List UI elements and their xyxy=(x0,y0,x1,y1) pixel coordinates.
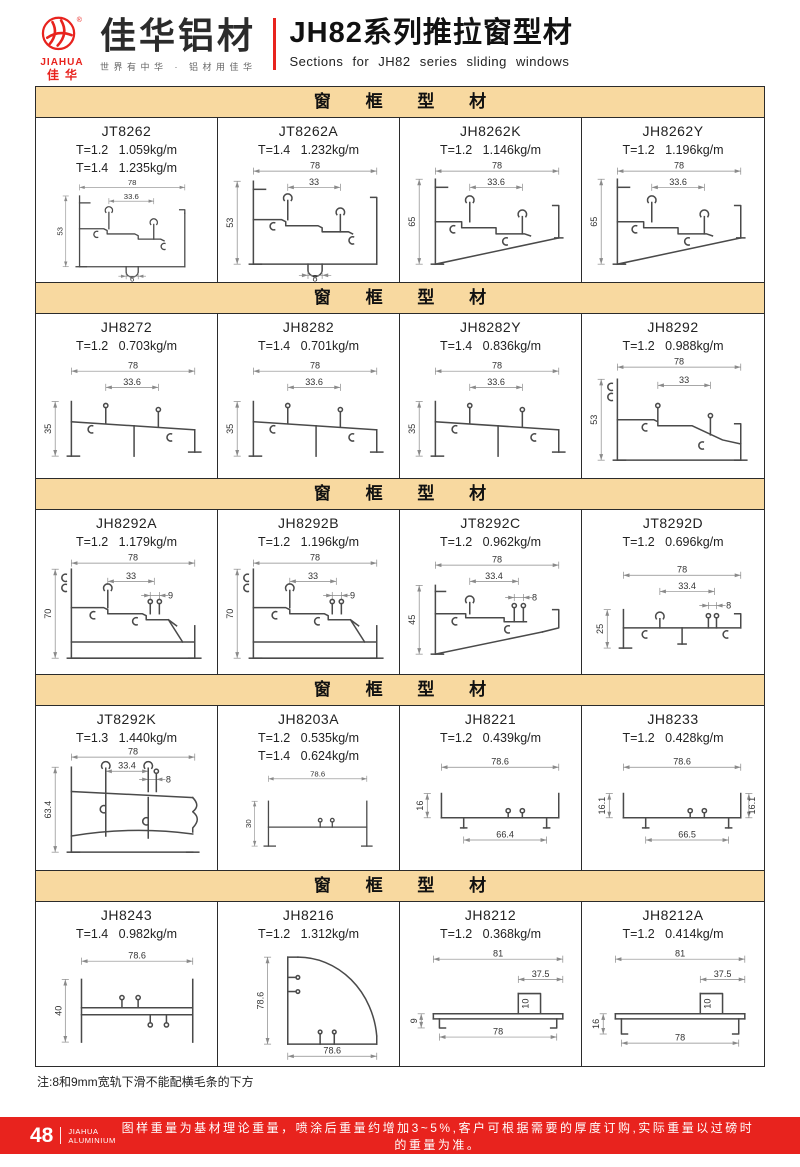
dim-label: 45 xyxy=(407,614,417,624)
dim-label: 35 xyxy=(43,423,53,433)
profile-drawing: 7833.4863.4 xyxy=(36,747,217,870)
profile-code: JT8292K xyxy=(97,711,157,729)
page-title: JH82系列推拉窗型材 xyxy=(290,16,573,51)
page-header: ® JIAHUA 佳华 佳华铝材 世界有中华 · 铝材用佳华 JH82系列推拉窗… xyxy=(0,0,800,84)
profile-drawing-svg: 7833.635 xyxy=(39,355,215,478)
footer-divider xyxy=(60,1127,61,1144)
dim-label: 81 xyxy=(675,948,685,958)
profile-specs: T=1.2 1.179kg/m xyxy=(76,533,177,551)
profile-drawing-svg: 78.61666.4 xyxy=(403,747,579,870)
catalog-section-4: 窗 框 型 材 JT8292K T=1.3 1.440kg/m 7833.486… xyxy=(36,674,764,870)
profile-spec: T=1.2 0.439kg/m xyxy=(440,729,541,747)
dim-label: 25 xyxy=(595,623,605,633)
dim-label: 16 xyxy=(591,1018,601,1028)
profile-cell-JH8262K: JH8262K T=1.2 1.146kg/m 7833.665 xyxy=(400,118,582,282)
dim-label: 66.4 xyxy=(496,829,514,839)
catalog-section-3: 窗 框 型 材 JH8292A T=1.2 1.179kg/m 7833970 … xyxy=(36,478,764,674)
dim-label: 9 xyxy=(167,590,172,600)
footer-bar: 48 JIAHUA ALUMINIUM 图样重量为基材理论重量，喷涂后重量约增加… xyxy=(0,1117,800,1154)
dim-label: 33.6 xyxy=(305,376,323,386)
profile-drawing-svg: 8137.5101678 xyxy=(585,943,761,1066)
catalog-section-1: 窗 框 型 材 JT8262 T=1.2 1.059kg/mT=1.4 1.23… xyxy=(36,87,764,282)
dim-label: 10 xyxy=(520,998,530,1008)
section-title: 窗 框 型 材 xyxy=(36,870,764,902)
profile-spec: T=1.2 1.179kg/m xyxy=(76,533,177,551)
profile-spec: T=1.2 1.312kg/m xyxy=(258,925,359,943)
profile-drawing: 78.61666.4 xyxy=(400,747,581,870)
profile-specs: T=1.2 0.439kg/m xyxy=(440,729,541,747)
dim-label: 33 xyxy=(125,570,135,580)
profile-code: JH8292 xyxy=(647,319,698,337)
dim-label: 16.1 xyxy=(597,796,607,814)
profile-spec: T=1.4 0.701kg/m xyxy=(258,337,359,355)
dim-label: 78.6 xyxy=(255,991,265,1009)
profile-cell-JH8203A: JH8203A T=1.2 0.535kg/mT=1.4 0.624kg/m 7… xyxy=(218,706,400,870)
brand-name-cn: 佳华 xyxy=(41,68,83,84)
profile-specs: T=1.2 0.988kg/m xyxy=(622,337,723,355)
dim-label: 78 xyxy=(492,554,502,564)
profile-drawing-svg: 7833970 xyxy=(39,551,215,674)
profile-spec: T=1.2 0.988kg/m xyxy=(622,337,723,355)
dim-label: 66.5 xyxy=(678,829,696,839)
profile-cell-JH8212A: JH8212A T=1.2 0.414kg/m 8137.5101678 xyxy=(582,902,764,1066)
dim-label: 53 xyxy=(55,227,64,236)
profile-cell-JH8292: JH8292 T=1.2 0.988kg/m 783353 xyxy=(582,314,764,478)
profile-spec: T=1.2 0.428kg/m xyxy=(622,729,723,747)
profile-spec: T=1.2 0.962kg/m xyxy=(440,533,541,551)
dim-label: 78 xyxy=(674,160,684,170)
dim-label: 78 xyxy=(492,360,502,370)
dim-label: 8 xyxy=(165,774,170,784)
profile-code: JT8262 xyxy=(102,123,152,141)
title-block: JH82系列推拉窗型材 Sections for JH82 series sli… xyxy=(290,16,573,69)
dim-label: 78.6 xyxy=(323,1045,341,1055)
section-grid: JT8292K T=1.3 1.440kg/m 7833.4863.4 JH82… xyxy=(36,706,764,870)
profile-code: JH8272 xyxy=(101,319,152,337)
section-grid: JH8292A T=1.2 1.179kg/m 7833970 JH8292B … xyxy=(36,510,764,674)
profile-drawing: 7833.6536 xyxy=(36,177,217,282)
dim-label: 78 xyxy=(127,178,136,187)
profile-cell-JT8292C: JT8292C T=1.2 0.962kg/m 7833.4845 xyxy=(400,510,582,674)
dim-label: 8 xyxy=(531,592,536,602)
footer-brand: JIAHUA ALUMINIUM xyxy=(68,1127,116,1145)
profile-drawing-svg: 78.640 xyxy=(39,943,215,1066)
dim-label: 33.6 xyxy=(123,192,138,201)
dim-label: 9 xyxy=(349,590,354,600)
profile-drawing: 7833.4845 xyxy=(400,551,581,674)
dim-label: 78 xyxy=(677,564,687,574)
dim-label: 53 xyxy=(225,217,235,227)
profile-cell-JH8292B: JH8292B T=1.2 1.196kg/m 7833970 xyxy=(218,510,400,674)
dim-label: 16 xyxy=(415,800,425,810)
section-grid: JT8262 T=1.2 1.059kg/mT=1.4 1.235kg/m 78… xyxy=(36,118,764,282)
profile-drawing-svg: 7833970 xyxy=(221,551,397,674)
profile-cell-JH8282Y: JH8282Y T=1.4 0.836kg/m 7833.635 xyxy=(400,314,582,478)
profile-code: JH8282Y xyxy=(460,319,521,337)
dim-label: 33 xyxy=(308,176,318,186)
profile-code: JH8262Y xyxy=(642,123,703,141)
dim-label: 65 xyxy=(589,216,599,226)
profile-spec: T=1.4 1.232kg/m xyxy=(258,141,359,159)
section-title: 窗 框 型 材 xyxy=(36,674,764,706)
profile-cell-JT8292K: JT8292K T=1.3 1.440kg/m 7833.4863.4 xyxy=(36,706,218,870)
jiahua-logo-icon: ® xyxy=(36,14,88,58)
dim-label: 70 xyxy=(225,608,235,618)
profile-code: JH8212 xyxy=(465,907,516,925)
profile-cell-JH8212: JH8212 T=1.2 0.368kg/m 8137.510978 xyxy=(400,902,582,1066)
profile-drawing: 7833.665 xyxy=(400,159,581,282)
dim-label: 16.1 xyxy=(747,796,757,814)
footer-brand-line1: JIAHUA xyxy=(68,1127,116,1136)
profile-spec: T=1.2 0.414kg/m xyxy=(622,925,723,943)
dim-label: 40 xyxy=(53,1005,63,1015)
profile-drawing: 78.678.6 xyxy=(218,943,399,1066)
profile-code: JH8212A xyxy=(642,907,703,925)
section-grid: JH8243 T=1.4 0.982kg/m 78.640 JH8216 T=1… xyxy=(36,902,764,1066)
profile-spec: T=1.2 1.059kg/m xyxy=(76,141,177,159)
dim-label: 78 xyxy=(128,747,138,757)
profile-specs: T=1.2 0.368kg/m xyxy=(440,925,541,943)
profile-cell-JH8272: JH8272 T=1.2 0.703kg/m 7833.635 xyxy=(36,314,218,478)
profile-drawing-svg: 78.616.116.166.5 xyxy=(585,747,761,870)
profile-drawing: 7833.4825 xyxy=(582,551,764,674)
profile-code: JH8292B xyxy=(278,515,339,533)
dim-label: 63.4 xyxy=(43,800,53,818)
profile-drawing: 7833970 xyxy=(36,551,217,674)
profile-drawing: 78.640 xyxy=(36,943,217,1066)
profile-drawing-svg: 8137.510978 xyxy=(403,943,579,1066)
dim-label: 8 xyxy=(726,600,731,610)
section-title: 窗 框 型 材 xyxy=(36,282,764,314)
dim-label: 78 xyxy=(493,1026,503,1036)
dim-label: 78.6 xyxy=(128,950,146,960)
svg-text:®: ® xyxy=(77,16,82,24)
dim-label: 33.4 xyxy=(485,570,503,580)
profile-cell-JH8262Y: JH8262Y T=1.2 1.196kg/m 7833.665 xyxy=(582,118,764,282)
profile-code: JT8292C xyxy=(460,515,520,533)
dim-label: 65 xyxy=(407,216,417,226)
title-divider xyxy=(273,18,276,70)
profile-code: JH8221 xyxy=(465,711,516,729)
profile-specs: T=1.2 1.146kg/m xyxy=(440,141,541,159)
profile-code: JH8282 xyxy=(283,319,334,337)
dim-label: 78.6 xyxy=(491,756,509,766)
profile-drawing-svg: 7833.635 xyxy=(403,355,579,478)
brand-text-block: 佳华铝材 世界有中华 · 铝材用佳华 xyxy=(100,16,257,73)
profile-cell-JH8221: JH8221 T=1.2 0.439kg/m 78.61666.4 xyxy=(400,706,582,870)
profile-drawing: 7833.635 xyxy=(400,355,581,478)
dim-label: 78.6 xyxy=(673,756,691,766)
profile-spec: T=1.2 1.146kg/m xyxy=(440,141,541,159)
dim-label: 9 xyxy=(409,1018,419,1023)
page-subtitle: Sections for JH82 series sliding windows xyxy=(290,54,573,69)
profile-specs: T=1.2 0.414kg/m xyxy=(622,925,723,943)
profile-cell-JT8262A: JT8262A T=1.4 1.232kg/m 7833538 xyxy=(218,118,400,282)
profile-drawing: 78.630 xyxy=(218,765,399,870)
profile-drawing-svg: 7833.665 xyxy=(585,159,761,282)
section-title: 窗 框 型 材 xyxy=(36,478,764,510)
dim-label: 37.5 xyxy=(714,969,732,979)
profile-drawing-svg: 7833.635 xyxy=(221,355,397,478)
profile-spec: T=1.2 0.703kg/m xyxy=(76,337,177,355)
profile-cell-JH8243: JH8243 T=1.4 0.982kg/m 78.640 xyxy=(36,902,218,1066)
dim-label: 35 xyxy=(407,423,417,433)
profile-drawing: 7833970 xyxy=(218,551,399,674)
dim-label: 78 xyxy=(675,1032,685,1042)
profile-specs: T=1.2 0.703kg/m xyxy=(76,337,177,355)
brand-name-en: JIAHUA xyxy=(40,58,83,68)
profile-drawing: 7833.665 xyxy=(582,159,764,282)
profile-drawing-svg: 7833.4863.4 xyxy=(39,747,215,870)
brand-slogan: 世界有中华 · 铝材用佳华 xyxy=(100,60,257,73)
profile-specs: T=1.2 1.312kg/m xyxy=(258,925,359,943)
dim-label: 6 xyxy=(130,274,134,282)
profile-drawing: 7833.635 xyxy=(36,355,217,478)
catalog-table: 窗 框 型 材 JT8262 T=1.2 1.059kg/mT=1.4 1.23… xyxy=(35,86,765,1067)
catalog-page: ® JIAHUA 佳华 佳华铝材 世界有中华 · 铝材用佳华 JH82系列推拉窗… xyxy=(0,0,800,1167)
dim-label: 33.6 xyxy=(487,376,505,386)
profile-code: JH8233 xyxy=(647,711,698,729)
profile-specs: T=1.2 0.535kg/mT=1.4 0.624kg/m xyxy=(258,729,359,765)
profile-cell-JH8216: JH8216 T=1.2 1.312kg/m 78.678.6 xyxy=(218,902,400,1066)
brand-logotype: 佳华铝材 xyxy=(100,16,257,56)
dim-label: 37.5 xyxy=(531,969,549,979)
dim-label: 78 xyxy=(492,160,502,170)
footer-brand-line2: ALUMINIUM xyxy=(68,1136,116,1145)
dim-label: 78 xyxy=(128,552,138,562)
profile-spec: T=1.4 0.836kg/m xyxy=(440,337,541,355)
profile-cell-JH8292A: JH8292A T=1.2 1.179kg/m 7833970 xyxy=(36,510,218,674)
catalog-section-2: 窗 框 型 材 JH8272 T=1.2 0.703kg/m 7833.635 … xyxy=(36,282,764,478)
profile-drawing-svg: 7833.6536 xyxy=(39,177,215,282)
dim-label: 33.6 xyxy=(123,376,141,386)
footnote: 注:8和9mm宽轨下滑不能配横毛条的下方 xyxy=(37,1073,763,1090)
profile-code: JH8216 xyxy=(283,907,334,925)
profile-code: JH8243 xyxy=(101,907,152,925)
dim-label: 8 xyxy=(312,273,317,282)
profile-cell-JT8262: JT8262 T=1.2 1.059kg/mT=1.4 1.235kg/m 78… xyxy=(36,118,218,282)
profile-specs: T=1.3 1.440kg/m xyxy=(76,729,177,747)
profile-specs: T=1.2 1.196kg/m xyxy=(258,533,359,551)
profile-specs: T=1.2 1.059kg/mT=1.4 1.235kg/m xyxy=(76,141,177,177)
dim-label: 78 xyxy=(310,552,320,562)
section-title: 窗 框 型 材 xyxy=(36,87,764,118)
profile-specs: T=1.2 0.428kg/m xyxy=(622,729,723,747)
profile-specs: T=1.4 0.701kg/m xyxy=(258,337,359,355)
dim-label: 33.6 xyxy=(669,176,687,186)
profile-drawing: 8137.510978 xyxy=(400,943,581,1066)
profile-drawing-svg: 7833.665 xyxy=(403,159,579,282)
dim-label: 81 xyxy=(493,948,503,958)
profile-spec: T=1.4 1.235kg/m xyxy=(76,159,177,177)
profile-code: JH8262K xyxy=(460,123,521,141)
dim-label: 33.4 xyxy=(118,760,136,770)
profile-code: JH8203A xyxy=(278,711,339,729)
dim-label: 78 xyxy=(310,360,320,370)
footer-text: 图样重量为基材理论重量，喷涂后重量约增加3~5%,客户可根据需要的厚度订购,实际… xyxy=(116,1119,770,1153)
catalog-section-5: 窗 框 型 材 JH8243 T=1.4 0.982kg/m 78.640 JH… xyxy=(36,870,764,1066)
profile-spec: T=1.3 1.440kg/m xyxy=(76,729,177,747)
profile-specs: T=1.4 0.836kg/m xyxy=(440,337,541,355)
profile-spec: T=1.2 0.696kg/m xyxy=(622,533,723,551)
profile-spec: T=1.4 0.624kg/m xyxy=(258,747,359,765)
profile-drawing: 78.616.116.166.5 xyxy=(582,747,764,870)
dim-label: 35 xyxy=(225,423,235,433)
dim-label: 78 xyxy=(128,360,138,370)
dim-label: 10 xyxy=(702,998,712,1008)
dim-label: 78 xyxy=(674,356,684,366)
profile-specs: T=1.2 0.696kg/m xyxy=(622,533,723,551)
dim-label: 33 xyxy=(679,374,689,384)
profile-drawing: 7833538 xyxy=(218,159,399,282)
profile-specs: T=1.2 1.196kg/m xyxy=(622,141,723,159)
profile-specs: T=1.4 1.232kg/m xyxy=(258,141,359,159)
brand-logo: ® JIAHUA 佳华 xyxy=(30,14,94,84)
profile-code: JH8292A xyxy=(96,515,157,533)
page-number: 48 xyxy=(30,1125,53,1146)
profile-drawing: 7833.635 xyxy=(218,355,399,478)
profile-drawing-svg: 7833.4825 xyxy=(585,551,761,674)
dim-label: 33.6 xyxy=(487,176,505,186)
dim-label: 78.6 xyxy=(310,769,325,778)
profile-code: JT8262A xyxy=(279,123,339,141)
profile-drawing-svg: 78.678.6 xyxy=(221,943,397,1066)
profile-spec: T=1.2 0.368kg/m xyxy=(440,925,541,943)
dim-label: 78 xyxy=(310,160,320,170)
profile-cell-JH8233: JH8233 T=1.2 0.428kg/m 78.616.116.166.5 xyxy=(582,706,764,870)
profile-spec: T=1.2 1.196kg/m xyxy=(622,141,723,159)
profile-code: JT8292D xyxy=(643,515,703,533)
profile-drawing-svg: 783353 xyxy=(585,355,761,478)
dim-label: 30 xyxy=(244,819,253,828)
profile-drawing: 783353 xyxy=(582,355,764,478)
profile-drawing-svg: 7833.4845 xyxy=(403,551,579,674)
profile-spec: T=1.2 0.535kg/m xyxy=(258,729,359,747)
dim-label: 70 xyxy=(43,608,53,618)
profile-spec: T=1.2 1.196kg/m xyxy=(258,533,359,551)
profile-cell-JH8282: JH8282 T=1.4 0.701kg/m 7833.635 xyxy=(218,314,400,478)
profile-spec: T=1.4 0.982kg/m xyxy=(76,925,177,943)
profile-drawing: 8137.5101678 xyxy=(582,943,764,1066)
profile-cell-JT8292D: JT8292D T=1.2 0.696kg/m 7833.4825 xyxy=(582,510,764,674)
dim-label: 33 xyxy=(307,570,317,580)
dim-label: 53 xyxy=(589,414,599,424)
profile-specs: T=1.2 0.962kg/m xyxy=(440,533,541,551)
profile-drawing-svg: 7833538 xyxy=(221,159,397,282)
section-grid: JH8272 T=1.2 0.703kg/m 7833.635 JH8282 T… xyxy=(36,314,764,478)
dim-label: 33.4 xyxy=(678,581,696,591)
profile-drawing-svg: 78.630 xyxy=(221,765,397,870)
profile-specs: T=1.4 0.982kg/m xyxy=(76,925,177,943)
